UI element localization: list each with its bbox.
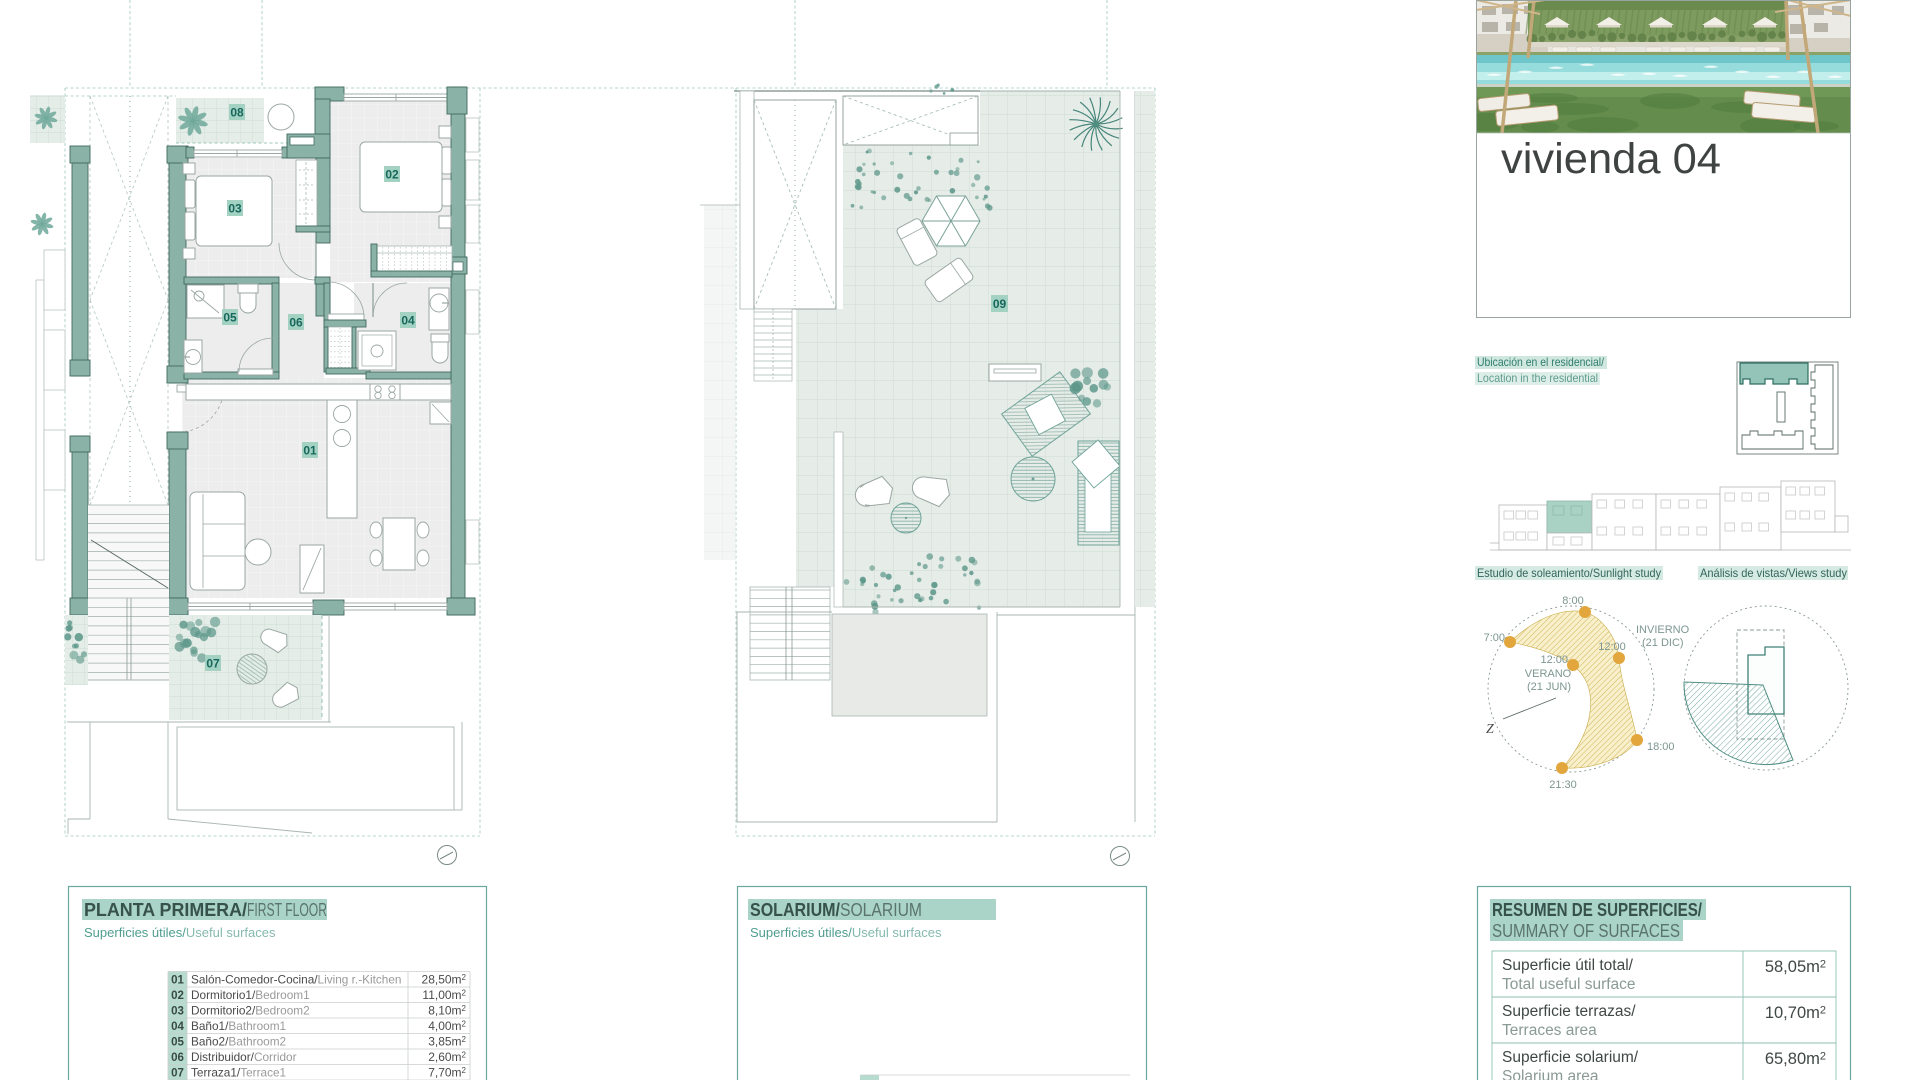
svg-text:Terraza1/Terrace1: Terraza1/Terrace1 bbox=[191, 1065, 286, 1079]
svg-text:12:00: 12:00 bbox=[1598, 641, 1626, 653]
svg-text:2,60m2: 2,60m2 bbox=[428, 1050, 466, 1064]
svg-text:09: 09 bbox=[993, 297, 1007, 311]
svg-text:Dormitorio1/Bedroom1: Dormitorio1/Bedroom1 bbox=[191, 988, 310, 1002]
svg-text:18:00: 18:00 bbox=[1647, 741, 1675, 753]
svg-text:65,80m2: 65,80m2 bbox=[1765, 1050, 1826, 1068]
svg-text:VERANO: VERANO bbox=[1525, 668, 1572, 680]
svg-text:11,00m2: 11,00m2 bbox=[422, 988, 466, 1002]
svg-text:(21 JUN): (21 JUN) bbox=[1527, 681, 1571, 693]
svg-text:SUMMARY OF SURFACES: SUMMARY OF SURFACES bbox=[1492, 920, 1680, 941]
svg-text:Dormitorio2/Bedroom2: Dormitorio2/Bedroom2 bbox=[191, 1003, 310, 1017]
svg-text:03: 03 bbox=[228, 202, 242, 216]
svg-text:INVIERNO: INVIERNO bbox=[1636, 624, 1690, 636]
svg-text:Z: Z bbox=[1486, 722, 1494, 737]
svg-text:06: 06 bbox=[171, 1052, 184, 1064]
svg-text:3,85m2: 3,85m2 bbox=[428, 1034, 466, 1048]
svg-text:Terraces area: Terraces area bbox=[1502, 1022, 1597, 1039]
svg-text:05: 05 bbox=[171, 1036, 184, 1048]
svg-text:Superficie terrazas/: Superficie terrazas/ bbox=[1502, 1003, 1636, 1020]
svg-text:Estudio de soleamiento/Sunligh: Estudio de soleamiento/Sunlight study bbox=[1477, 566, 1661, 580]
svg-text:Baño1/Bathroom1: Baño1/Bathroom1 bbox=[191, 1019, 286, 1033]
svg-text:Location in the residential: Location in the residential bbox=[1477, 371, 1598, 385]
svg-text:FIRST FLOOR: FIRST FLOOR bbox=[247, 899, 327, 920]
svg-text:Superficie útil total/: Superficie útil total/ bbox=[1502, 957, 1634, 974]
svg-text:Análisis de vistas/Views study: Análisis de vistas/Views study bbox=[1700, 566, 1847, 580]
svg-text:Ubicación en el residencial/: Ubicación en el residencial/ bbox=[1477, 355, 1605, 369]
svg-text:vivienda 04: vivienda 04 bbox=[1501, 135, 1721, 183]
svg-text:7,70m2: 7,70m2 bbox=[428, 1065, 466, 1079]
svg-text:58,05m2: 58,05m2 bbox=[1765, 958, 1826, 976]
svg-text:RESUMEN DE SUPERFICIES/: RESUMEN DE SUPERFICIES/ bbox=[1492, 899, 1702, 920]
svg-text:07: 07 bbox=[206, 657, 220, 671]
svg-text:SOLARIUM: SOLARIUM bbox=[840, 899, 922, 920]
svg-text:8,10m2: 8,10m2 bbox=[428, 1003, 466, 1017]
svg-text:Total useful surface: Total useful surface bbox=[1502, 976, 1636, 993]
svg-text:7:00: 7:00 bbox=[1484, 632, 1505, 644]
svg-text:06: 06 bbox=[289, 316, 303, 330]
svg-text:05: 05 bbox=[223, 311, 237, 325]
svg-text:04: 04 bbox=[401, 314, 415, 328]
svg-text:Baño2/Bathroom2: Baño2/Bathroom2 bbox=[191, 1034, 286, 1048]
svg-text:01: 01 bbox=[303, 444, 317, 458]
svg-text:02: 02 bbox=[385, 168, 399, 182]
svg-text:Superficies útiles/Useful surf: Superficies útiles/Useful surfaces bbox=[84, 925, 276, 940]
svg-text:8:00: 8:00 bbox=[1562, 595, 1583, 607]
svg-text:(21 DIC): (21 DIC) bbox=[1642, 637, 1684, 649]
svg-text:07: 07 bbox=[171, 1067, 184, 1079]
svg-text:28,50m2: 28,50m2 bbox=[422, 972, 467, 986]
svg-text:08: 08 bbox=[230, 106, 244, 120]
svg-text:04: 04 bbox=[171, 1021, 184, 1033]
svg-text:PLANTA PRIMERA/: PLANTA PRIMERA/ bbox=[84, 899, 247, 920]
svg-text:4,00m2: 4,00m2 bbox=[428, 1019, 466, 1033]
svg-text:SOLARIUM/: SOLARIUM/ bbox=[750, 899, 840, 920]
svg-text:10,70m2: 10,70m2 bbox=[1765, 1004, 1826, 1022]
svg-text:Salón-Comedor-Cocina/Living r.: Salón-Comedor-Cocina/Living r.-Kitchen bbox=[191, 972, 401, 986]
svg-text:12:00: 12:00 bbox=[1540, 654, 1568, 666]
svg-text:Distribuidor/Corridor: Distribuidor/Corridor bbox=[191, 1050, 297, 1064]
svg-text:21:30: 21:30 bbox=[1549, 779, 1577, 791]
svg-text:02: 02 bbox=[171, 990, 184, 1002]
svg-text:Superficie solarium/: Superficie solarium/ bbox=[1502, 1049, 1639, 1066]
svg-text:01: 01 bbox=[171, 974, 184, 986]
svg-text:Superficies útiles/Useful surf: Superficies útiles/Useful surfaces bbox=[750, 925, 942, 940]
svg-text:Solarium area: Solarium area bbox=[1502, 1068, 1599, 1080]
svg-text:03: 03 bbox=[171, 1005, 184, 1017]
